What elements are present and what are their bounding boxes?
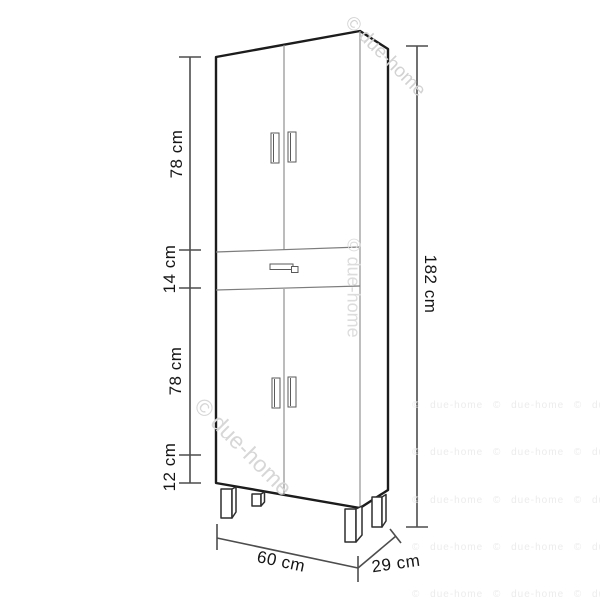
watermark-tile-row: © due-home © due-home © due-home: [412, 589, 600, 600]
watermark-tile-row: © due-home © due-home © due-home: [412, 542, 600, 553]
dim-label-total-height: 182 cm: [420, 255, 440, 314]
leg-front-left: [221, 487, 236, 518]
door-handle-upper-left: [271, 133, 279, 163]
door-handle-lower-left: [272, 378, 280, 408]
dim-label-upper-section: 78 cm: [167, 130, 187, 179]
leg-front-right: [345, 506, 362, 542]
leg-back-right: [372, 495, 386, 528]
watermark-tile-row: © due-home © due-home © due-home: [412, 400, 600, 411]
door-handle-upper-right: [288, 132, 296, 162]
watermark-middle-vertical: © due-home: [343, 238, 364, 337]
dim-label-drawer-section: 14 cm: [160, 245, 180, 294]
door-handle-lower-right: [288, 377, 296, 407]
watermark-tile-row: © due-home © due-home © due-home: [412, 495, 600, 506]
watermark-tile-pattern: © due-home © due-home © due-home © due-h…: [412, 400, 600, 600]
dim-label-legs-section: 12 cm: [160, 443, 180, 492]
dim-label-lower-section: 78 cm: [166, 347, 186, 396]
watermark-tile-row: © due-home © due-home © due-home: [412, 447, 600, 458]
leg-back-left: [252, 492, 265, 506]
diagram-canvas: © due-home © due-home © due-home © due-h…: [0, 0, 600, 600]
